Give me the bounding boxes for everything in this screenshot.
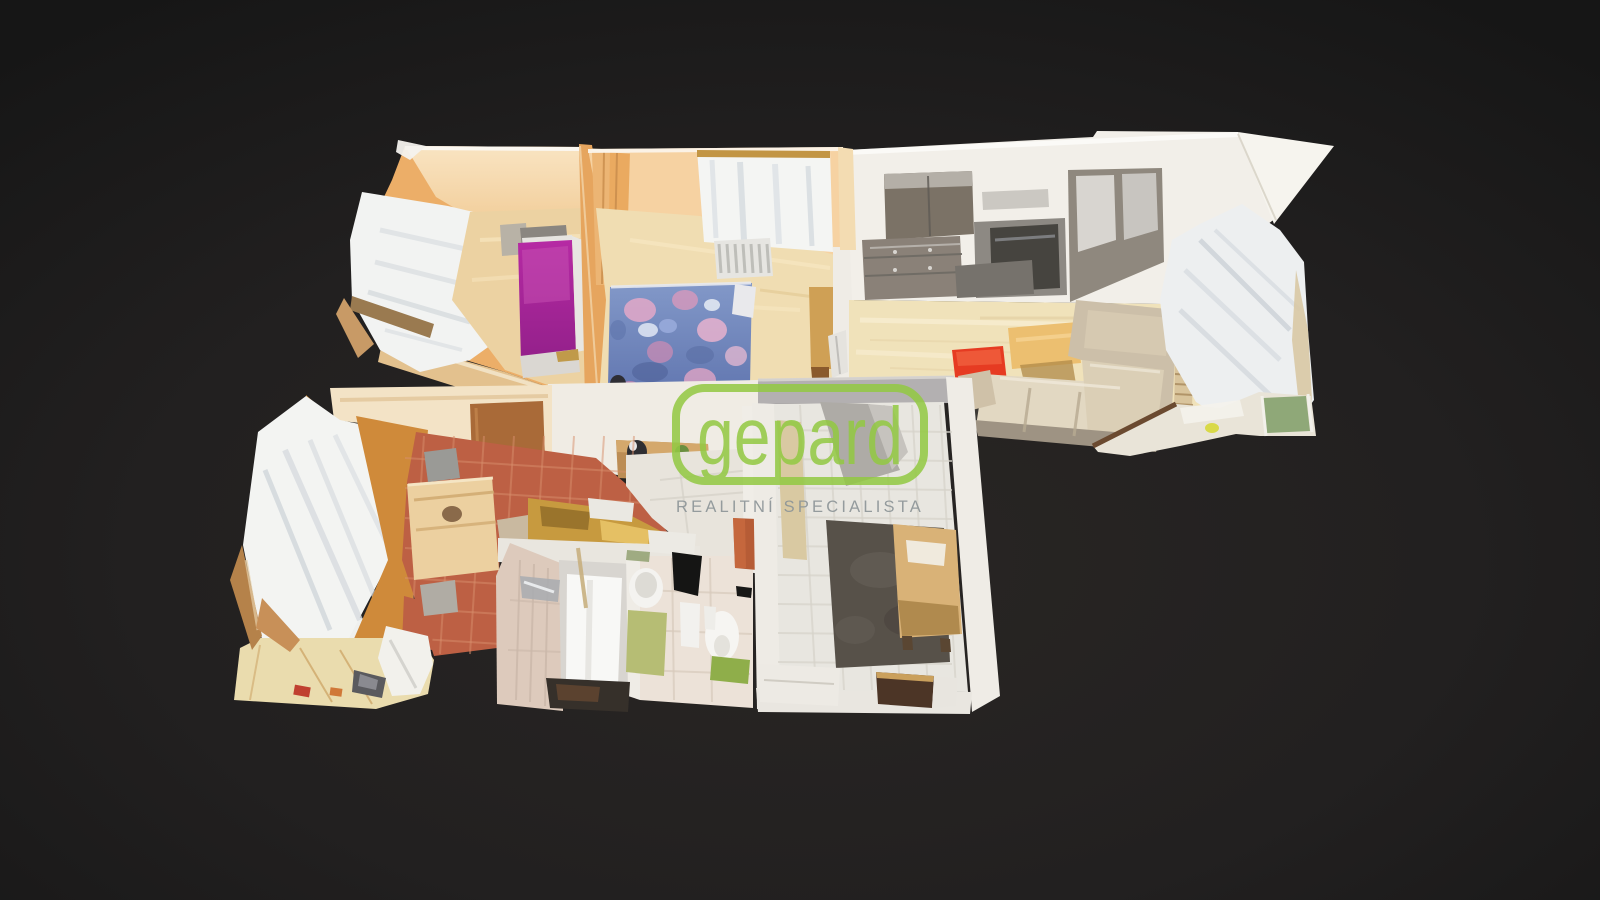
svg-text:gepard: gepard xyxy=(697,391,903,482)
svg-text:REALITNÍ SPECIALISTA: REALITNÍ SPECIALISTA xyxy=(676,497,924,516)
